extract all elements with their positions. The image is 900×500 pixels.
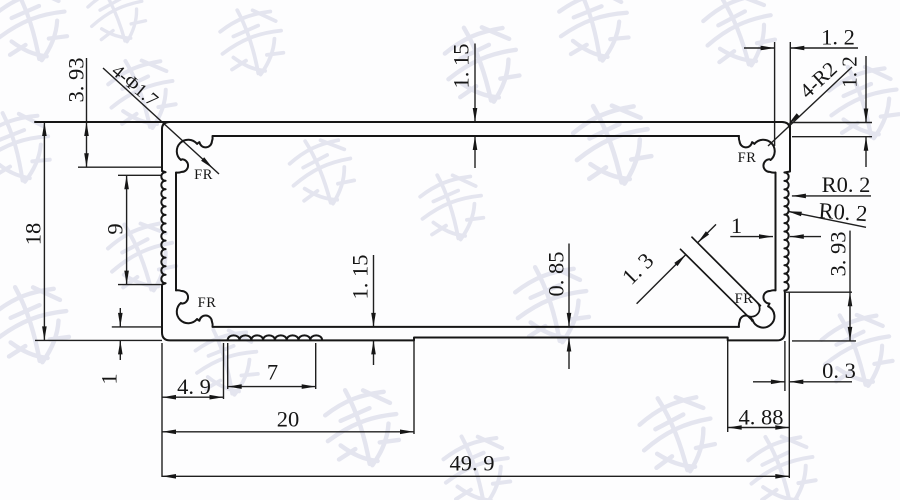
svg-text:20: 20 — [277, 407, 300, 432]
svg-text:1: 1 — [97, 373, 122, 384]
svg-text:R0. 2: R0. 2 — [818, 198, 868, 226]
svg-text:1. 2: 1. 2 — [838, 56, 862, 88]
svg-text:9: 9 — [103, 223, 128, 234]
svg-text:0. 85: 0. 85 — [544, 252, 569, 297]
svg-text:FR: FR — [735, 291, 754, 307]
svg-text:18: 18 — [21, 223, 46, 246]
svg-text:1. 15: 1. 15 — [348, 255, 373, 300]
svg-text:0. 3: 0. 3 — [822, 358, 856, 383]
svg-text:R0. 2: R0. 2 — [822, 172, 871, 197]
svg-text:4-R2: 4-R2 — [795, 57, 842, 103]
svg-text:FR: FR — [738, 150, 757, 166]
svg-text:3. 93: 3. 93 — [64, 58, 89, 103]
svg-text:1. 2: 1. 2 — [821, 25, 855, 50]
svg-text:1: 1 — [731, 213, 742, 238]
svg-text:7: 7 — [267, 360, 278, 385]
svg-text:3. 93: 3. 93 — [826, 232, 851, 277]
svg-text:1. 15: 1. 15 — [449, 44, 474, 89]
svg-text:1. 3: 1. 3 — [617, 248, 659, 290]
svg-text:FR: FR — [194, 167, 213, 183]
svg-text:49. 9: 49. 9 — [450, 451, 495, 476]
svg-text:FR: FR — [198, 295, 217, 311]
svg-text:4. 9: 4. 9 — [177, 374, 211, 399]
svg-text:4. 88: 4. 88 — [739, 405, 784, 430]
